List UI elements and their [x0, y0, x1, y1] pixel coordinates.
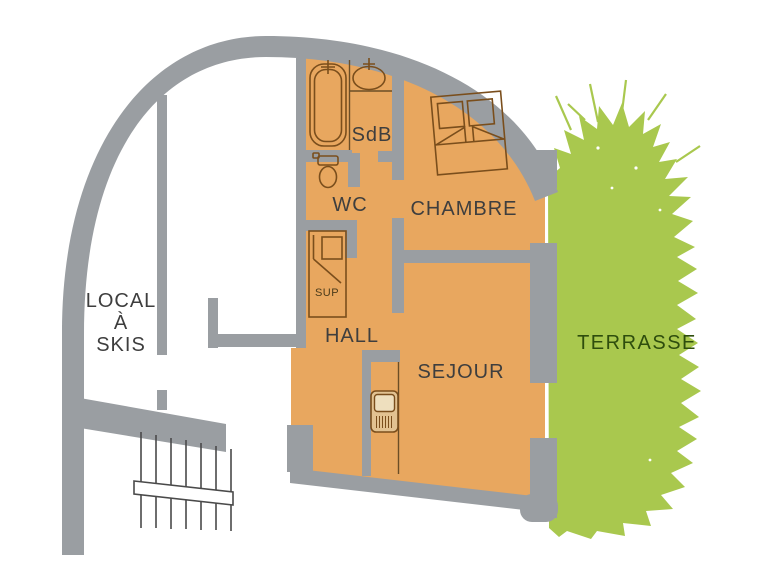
label-local-line2: À	[114, 311, 128, 334]
label-sdb: SdB	[352, 124, 393, 146]
corridor-l-wall-horizontal	[208, 334, 305, 347]
stair-top-wall	[80, 398, 226, 452]
label-local-line3: SKIS	[96, 334, 146, 356]
entrance-corner-wall	[287, 425, 313, 472]
terrace-area	[548, 80, 701, 539]
stove-nook-wall-top	[362, 350, 400, 362]
floor-plan-canvas: LOCAL À SKIS SdB WC CHAMBRE SUP HALL SEJ…	[0, 0, 767, 575]
label-terrasse: TERRASSE	[577, 332, 697, 354]
label-sejour: SEJOUR	[417, 361, 504, 383]
bedroom-bottom-wall	[392, 250, 532, 263]
label-sup: SUP	[315, 287, 339, 299]
label-hall: HALL	[325, 325, 379, 347]
left-outer-wall	[62, 325, 84, 555]
stove-icon	[371, 391, 398, 432]
ski-room-door-stub	[157, 390, 167, 410]
wc-right-wall	[348, 153, 360, 187]
floor-plan: LOCAL À SKIS SdB WC CHAMBRE SUP HALL SEJ…	[0, 0, 767, 575]
right-wall-upper	[530, 243, 557, 383]
stove-nook-wall-side	[362, 362, 371, 476]
arc-end-stub	[530, 150, 557, 188]
terrace-shape	[548, 103, 701, 539]
label-chambre: CHAMBRE	[410, 198, 517, 220]
ski-room-right-wall	[157, 95, 167, 355]
apartment-left-wall	[296, 58, 306, 348]
bedroom-left-wall-lower	[392, 218, 404, 313]
label-local-line1: LOCAL	[86, 290, 157, 312]
right-wall-foot	[520, 494, 558, 522]
label-wc: WC	[332, 194, 367, 216]
handrail-icon	[134, 481, 233, 505]
bedroom-left-wall-upper	[392, 57, 404, 180]
